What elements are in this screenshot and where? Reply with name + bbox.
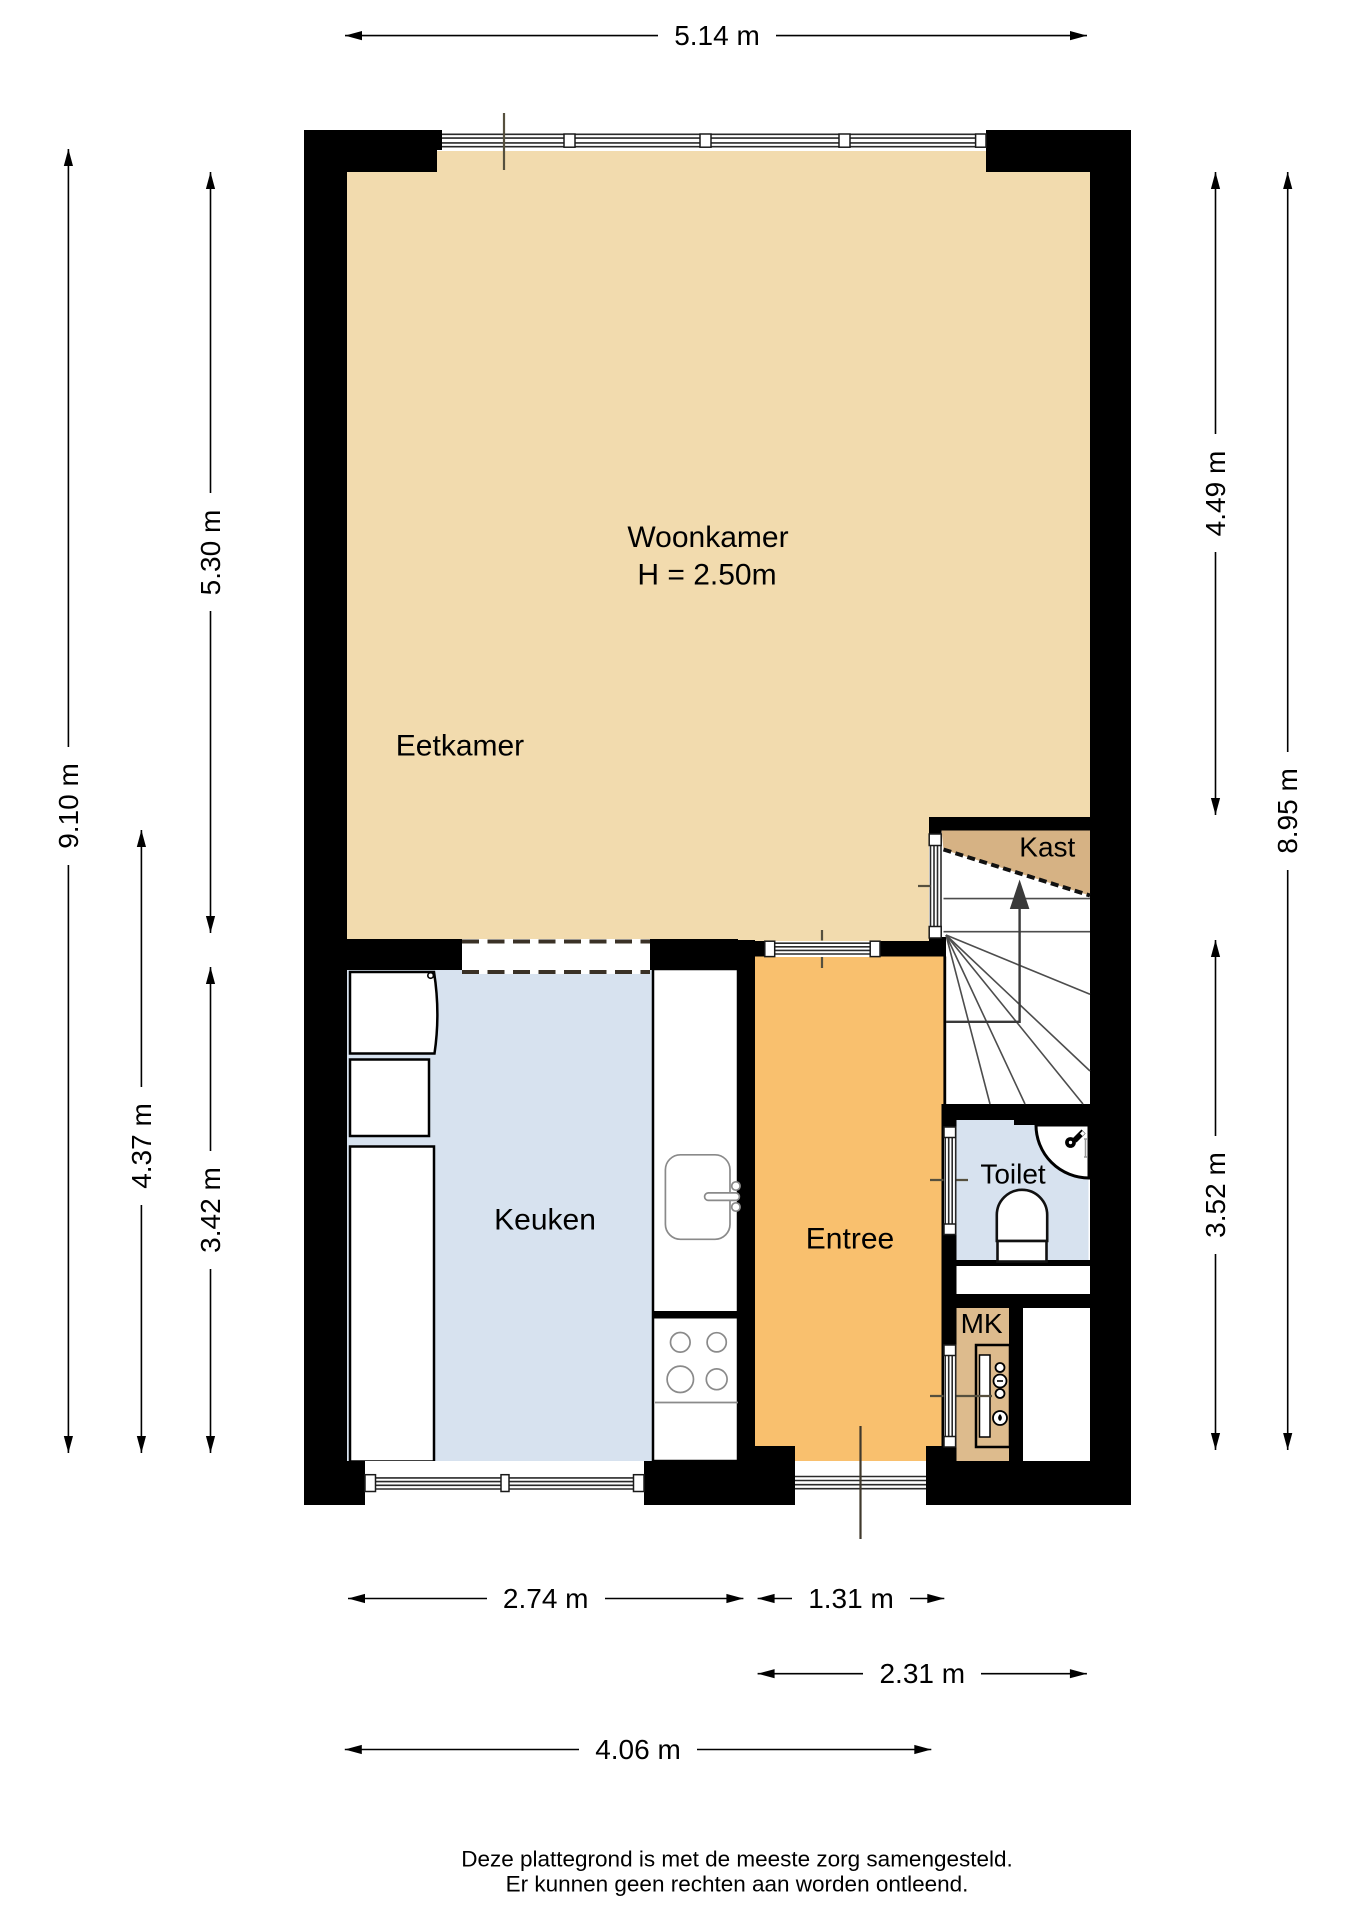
svg-text:9.10 m: 9.10 m [53, 763, 84, 849]
svg-text:4.49 m: 4.49 m [1200, 451, 1231, 537]
svg-text:Keuken: Keuken [494, 1204, 596, 1237]
svg-text:5.30 m: 5.30 m [195, 510, 226, 596]
svg-text:2.74 m: 2.74 m [503, 1583, 589, 1614]
svg-text:1.31 m: 1.31 m [808, 1583, 894, 1614]
svg-text:4.06 m: 4.06 m [595, 1734, 681, 1765]
svg-text:3.52 m: 3.52 m [1200, 1152, 1231, 1238]
svg-text:Woonkamer: Woonkamer [627, 521, 788, 554]
svg-text:Entree: Entree [806, 1223, 894, 1256]
svg-text:2.31 m: 2.31 m [879, 1658, 965, 1689]
svg-text:Toilet: Toilet [980, 1159, 1046, 1190]
svg-text:Deze plattegrond is met de mee: Deze plattegrond is met de meeste zorg s… [461, 1847, 1013, 1872]
svg-text:Kast: Kast [1019, 832, 1075, 863]
svg-text:3.42 m: 3.42 m [195, 1167, 226, 1253]
svg-text:Eetkamer: Eetkamer [396, 730, 524, 763]
svg-text:4.37 m: 4.37 m [126, 1103, 157, 1189]
svg-text:8.95 m: 8.95 m [1272, 768, 1303, 854]
svg-text:H = 2.50m: H = 2.50m [637, 559, 776, 592]
svg-text:Er kunnen geen rechten aan wor: Er kunnen geen rechten aan worden ontlee… [506, 1872, 969, 1897]
svg-text:5.14 m: 5.14 m [674, 20, 760, 51]
svg-text:MK: MK [961, 1308, 1003, 1339]
